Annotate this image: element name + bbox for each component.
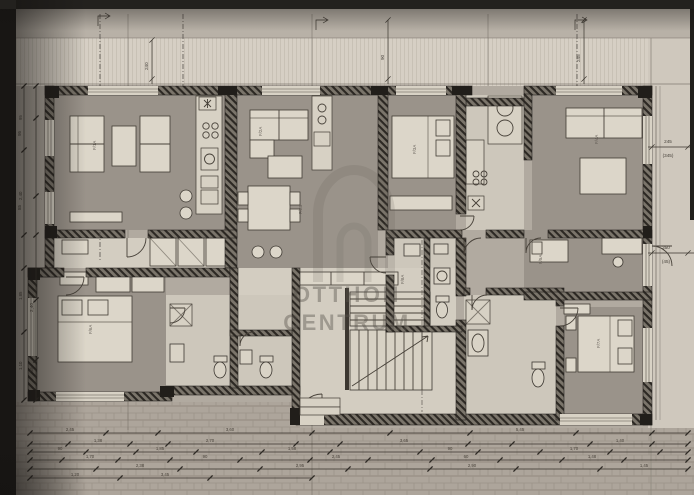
dim-label: 1,20 — [71, 472, 80, 477]
washing-machine-symbol — [434, 268, 450, 284]
window-symbol — [45, 120, 54, 156]
sink-symbol — [404, 244, 420, 256]
single-bed-symbol — [530, 240, 568, 262]
dim-label: 85 — [17, 204, 22, 210]
desk-symbol — [62, 240, 88, 254]
double-bed-symbol — [392, 116, 454, 178]
dim-label: 2,38 — [136, 463, 145, 468]
dim-label: 1,40 — [616, 438, 625, 443]
dim-label: 60 — [464, 454, 469, 459]
double-bed-symbol — [58, 296, 132, 362]
dim-label: 1,38 — [94, 438, 103, 443]
dim-label: 3,60 — [226, 427, 235, 432]
shower-symbol — [466, 300, 490, 324]
dim-label: 2,95 — [296, 463, 305, 468]
dim-label: 3,65 — [400, 438, 409, 443]
dim-label: 2,70 — [206, 438, 215, 443]
kitchen-counter-symbol — [312, 96, 332, 170]
watermark-line2: CENTRUM — [283, 310, 411, 335]
wardrobe-symbol — [390, 196, 452, 210]
room-code: F/5A — [538, 255, 543, 264]
dim-label: 2,40 — [29, 303, 34, 312]
coffee-table-symbol — [268, 156, 302, 178]
dim-label: 1,48 — [588, 454, 597, 459]
dim-label: 1,58 — [288, 446, 297, 451]
stool-symbol — [180, 190, 192, 202]
dim-label: 1,70 — [570, 446, 579, 451]
watermark-line1: OTTHON — [293, 282, 401, 307]
sofa-symbol — [70, 116, 104, 172]
window-symbol — [56, 392, 124, 401]
dim-label: 90 — [58, 446, 63, 451]
dim-label: (45) — [662, 259, 671, 264]
dim-label: 245 — [664, 139, 672, 144]
window-symbol — [262, 86, 320, 95]
entry-step — [300, 398, 340, 407]
room-code: F/1A — [92, 141, 97, 150]
window-symbol — [88, 86, 158, 95]
dim-label: 1,45 — [640, 463, 649, 468]
scanned-floor-plan-photo: 245 (345) 350 (45) 240 90 245 95 85 2,40… — [0, 0, 694, 495]
dim-label: 1,10 — [18, 361, 23, 370]
tv-bench-symbol — [70, 212, 122, 222]
coffee-table-symbol — [580, 158, 626, 194]
cabinet-symbol — [564, 304, 590, 314]
striped-band — [16, 38, 694, 86]
dim-label: 3,45 — [161, 472, 170, 477]
dim-label: 2,45 — [66, 427, 75, 432]
dim-label: 350 — [662, 245, 670, 250]
room-code: F/4A — [594, 135, 599, 144]
double-bed-symbol — [578, 316, 634, 372]
sofa-symbol — [566, 108, 642, 138]
dim-label: 95 — [17, 130, 22, 136]
nightstand-symbol — [566, 358, 576, 372]
desk-symbol — [602, 238, 642, 254]
room-code: F/7A — [596, 339, 601, 348]
window-symbol — [556, 86, 622, 95]
window-symbol — [560, 414, 632, 425]
window-symbol — [45, 192, 54, 224]
dim-label: 5,45 — [516, 427, 525, 432]
dim-label: 2,40 — [18, 191, 23, 200]
window-symbol — [643, 244, 652, 286]
stool-symbol — [270, 246, 282, 258]
dim-label: 240 — [144, 62, 149, 70]
dim-label: (345) — [663, 153, 674, 158]
dim-label: 90 — [380, 54, 385, 60]
dim-label: 1,85 — [18, 291, 23, 300]
sink-symbol — [240, 350, 252, 364]
dim-label: 90 — [448, 446, 453, 451]
wardrobe-symbol — [150, 238, 228, 266]
kitchen-counter-symbol — [196, 96, 222, 214]
toilet-symbol — [532, 362, 545, 387]
dim-label: 35 — [29, 366, 34, 372]
chair-symbol — [613, 257, 623, 267]
entry-step — [300, 407, 340, 415]
dim-label: 2,90 — [468, 463, 477, 468]
sofa-symbol — [140, 116, 170, 172]
toilet-symbol — [214, 356, 227, 378]
window-symbol — [643, 116, 652, 164]
sink-symbol — [468, 330, 488, 356]
dim-label: 90 — [203, 454, 208, 459]
window-symbol — [643, 328, 652, 382]
stool-symbol — [252, 246, 264, 258]
door-opening — [300, 414, 324, 425]
room-code: F/3A — [412, 145, 417, 154]
dim-label: 95 — [18, 115, 23, 120]
toilet-symbol — [260, 356, 273, 378]
coffee-table-symbol — [112, 126, 136, 166]
room-code: F/2B — [298, 205, 303, 214]
dim-label: 1,85 — [156, 446, 165, 451]
room-code: F/6A — [88, 325, 93, 334]
dim-label: 1,70 — [86, 454, 95, 459]
sink-symbol — [170, 344, 184, 362]
dim-label: 245 — [576, 54, 581, 62]
floor-plan-canvas: 245 (345) 350 (45) 240 90 245 95 85 2,40… — [0, 0, 694, 495]
window-symbol — [396, 86, 446, 95]
dim-label: 2,45 — [332, 454, 341, 459]
sink-symbol — [434, 244, 448, 254]
stool-symbol — [180, 207, 192, 219]
room-code: F/2A — [258, 127, 263, 136]
